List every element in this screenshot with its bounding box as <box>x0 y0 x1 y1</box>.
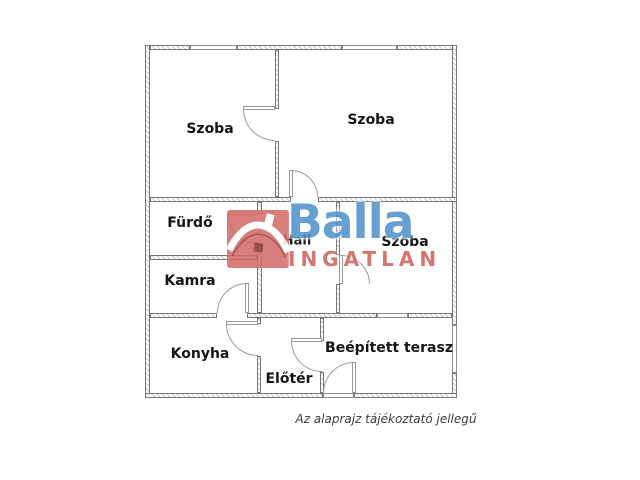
house-roof-icon <box>227 210 289 270</box>
wall <box>275 50 279 109</box>
door-swing-arc <box>291 170 318 197</box>
door-leaf <box>352 362 356 393</box>
floorplan-canvas: SzobaSzobaFürdőHallSzobaKamraKonyhaElőté… <box>0 0 640 480</box>
door-leaf <box>245 283 249 313</box>
door-swing-arc <box>226 324 258 356</box>
door-swing-arc <box>217 283 247 313</box>
door-leaf <box>243 106 275 110</box>
wall <box>247 313 377 318</box>
wall <box>397 45 457 50</box>
door-swing-arc <box>323 362 354 393</box>
room-label: Beépített terasz <box>325 340 453 356</box>
wall <box>145 393 323 398</box>
door-leaf <box>226 321 258 325</box>
wall <box>354 393 457 398</box>
wall <box>145 45 150 398</box>
room-label: Szoba <box>347 112 394 128</box>
room-label: Kamra <box>164 273 215 289</box>
agency-watermark: Balla INGATLAN <box>227 203 462 275</box>
room-label: Fürdő <box>167 215 212 231</box>
window <box>342 45 397 50</box>
room-label: Előtér <box>265 371 312 387</box>
wall <box>336 284 340 313</box>
room-label: Szoba <box>186 121 233 137</box>
door-leaf <box>289 170 293 197</box>
brand-name: Balla <box>287 195 413 250</box>
window <box>323 393 354 398</box>
wall <box>150 45 190 50</box>
door-leaf <box>291 338 322 342</box>
room-label: Konyha <box>171 346 230 362</box>
brand-subname: INGATLAN <box>288 247 441 271</box>
wall <box>150 197 291 202</box>
door-swing-arc <box>243 109 275 141</box>
disclaimer-caption: Az alaprajz tájékoztató jellegű <box>281 412 491 426</box>
wall <box>452 45 457 325</box>
wall <box>275 141 279 197</box>
window <box>190 45 237 50</box>
wall <box>257 356 261 393</box>
wall <box>408 313 452 318</box>
window <box>377 313 408 318</box>
wall <box>150 313 217 318</box>
door-swing-arc <box>291 341 322 372</box>
wall <box>237 45 342 50</box>
